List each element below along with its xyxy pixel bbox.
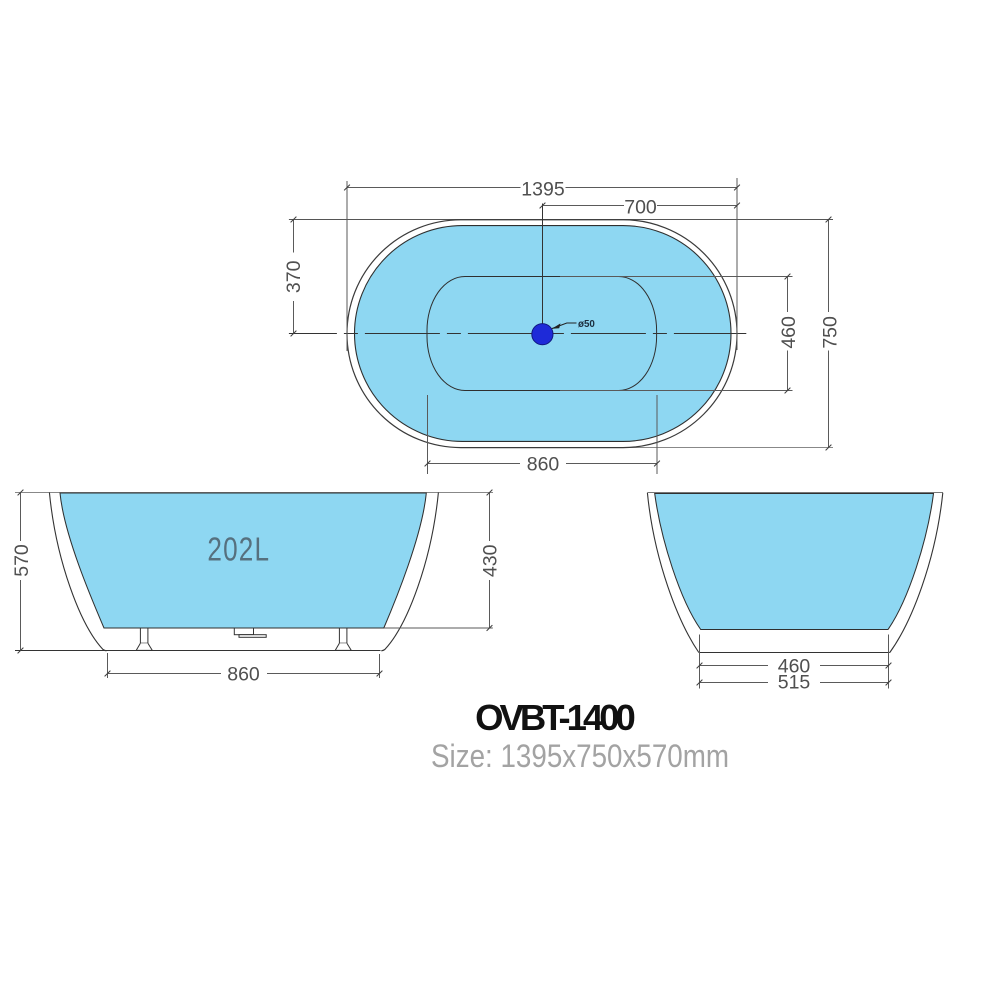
svg-text:1395: 1395 [521, 179, 565, 201]
svg-text:370: 370 [283, 260, 305, 293]
svg-text:570: 570 [11, 544, 33, 577]
svg-text:700: 700 [624, 197, 657, 219]
svg-text:430: 430 [480, 544, 502, 577]
svg-text:202L: 202L [207, 532, 270, 569]
svg-text:860: 860 [227, 663, 260, 685]
svg-text:750: 750 [819, 316, 841, 349]
svg-text:Size: 1395x750x570mm: Size: 1395x750x570mm [431, 739, 729, 774]
svg-text:860: 860 [527, 453, 560, 475]
svg-text:460: 460 [778, 316, 800, 349]
svg-text:ø50: ø50 [578, 319, 595, 330]
svg-text:515: 515 [778, 672, 811, 694]
svg-text:OVBT-1400: OVBT-1400 [475, 697, 634, 738]
